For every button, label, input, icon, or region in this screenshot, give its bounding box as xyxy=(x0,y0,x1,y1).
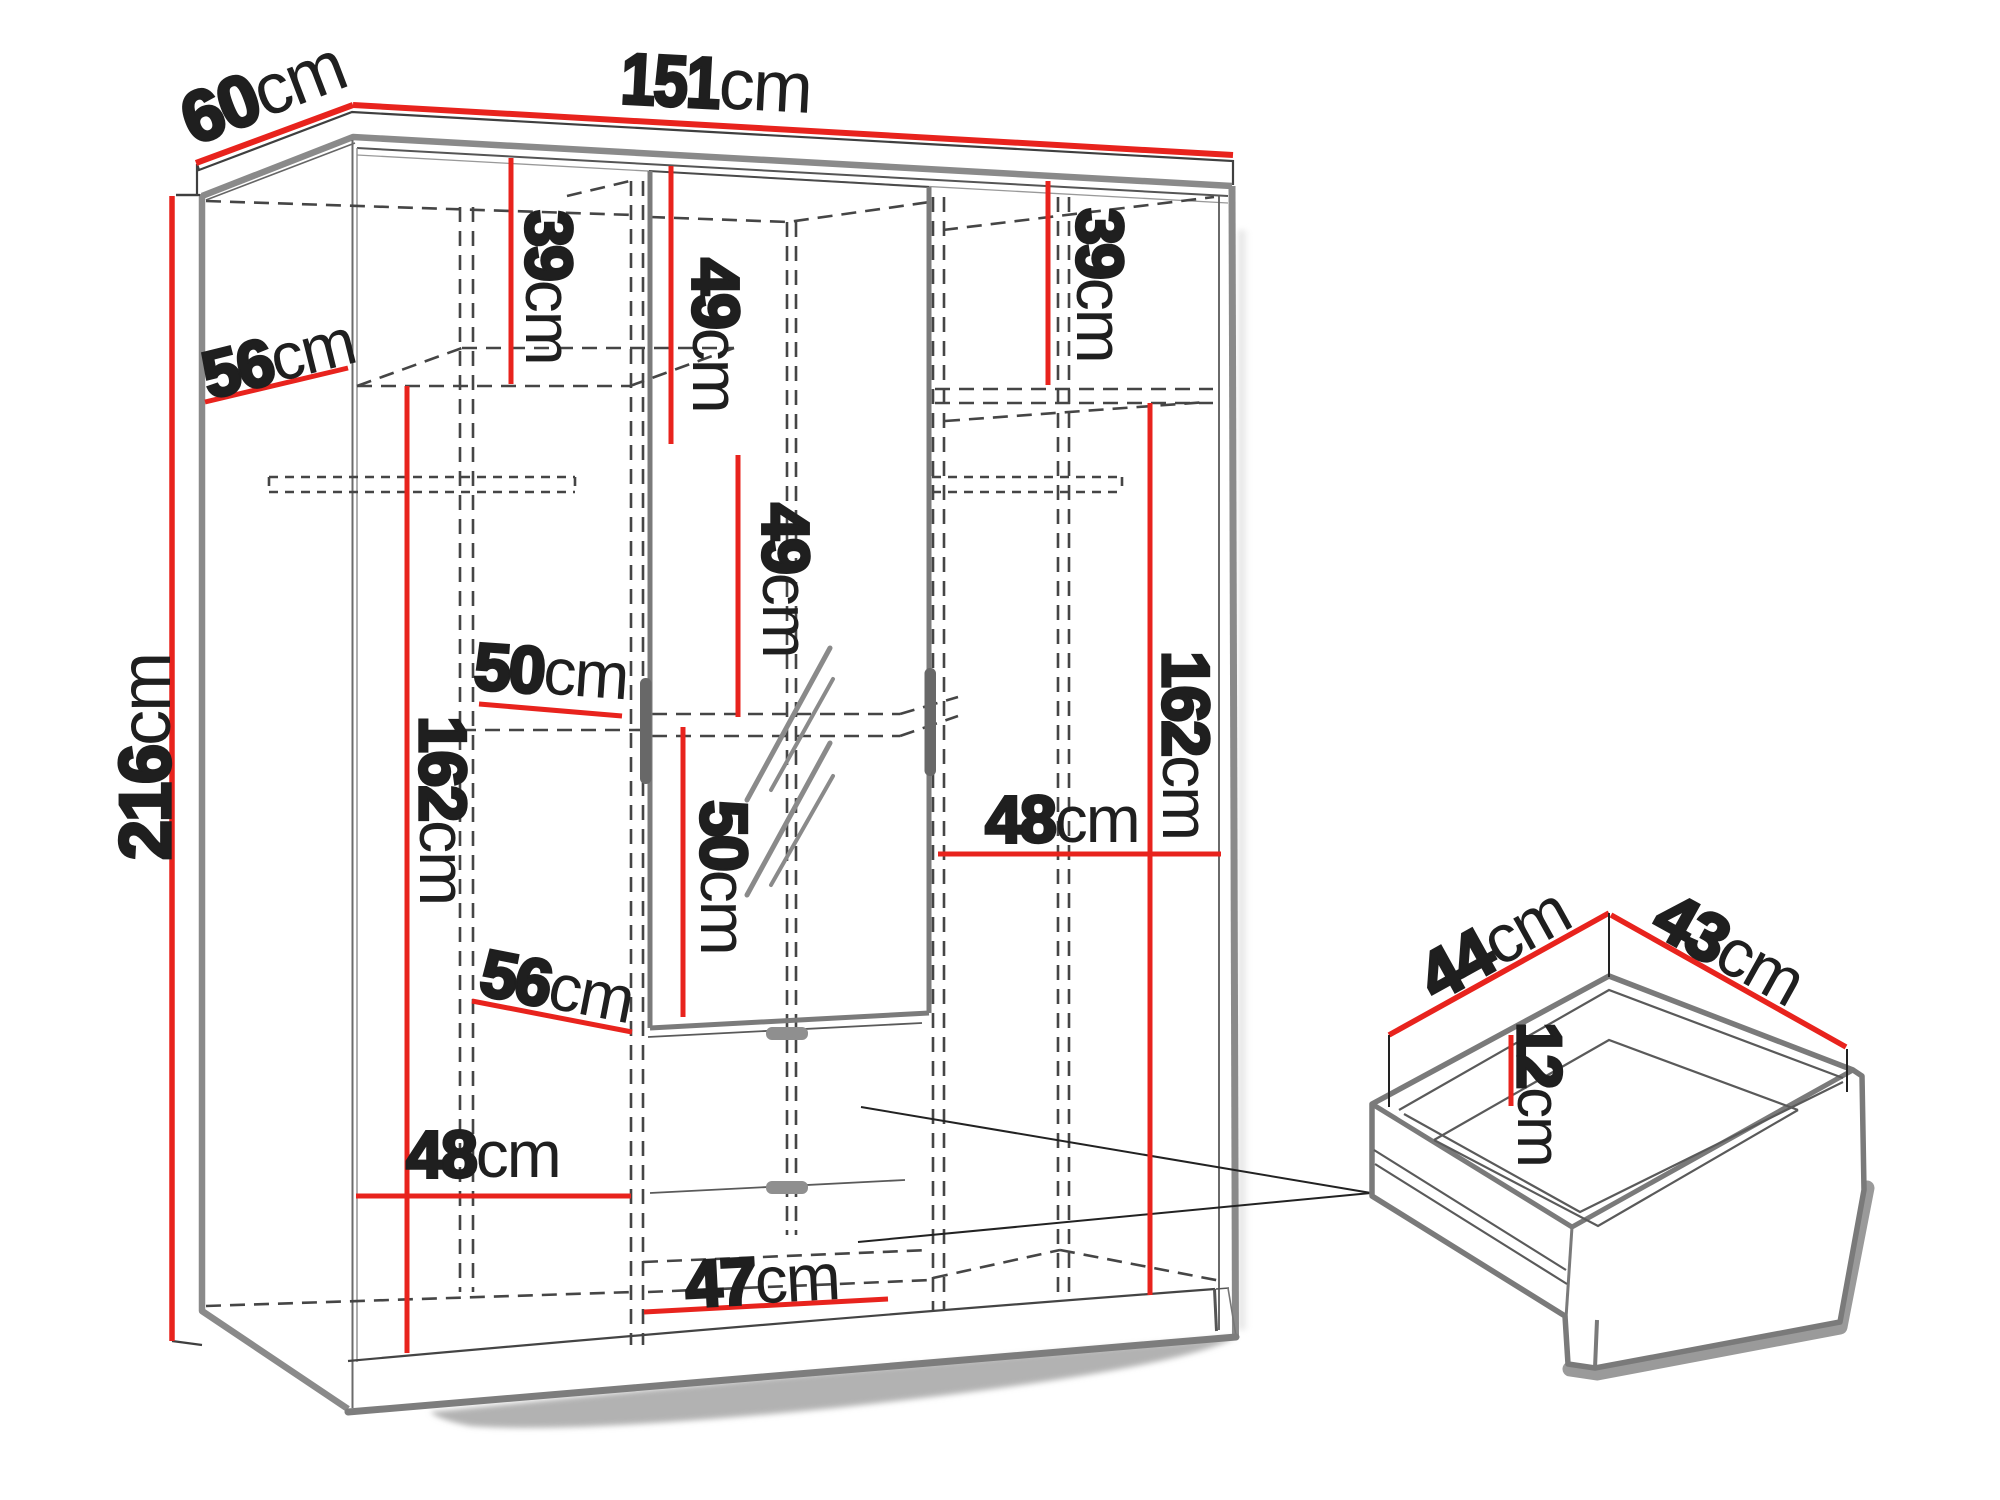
svg-text:49cm: 49cm xyxy=(749,503,823,656)
svg-text:50cm: 50cm xyxy=(687,800,761,953)
svg-text:39cm: 39cm xyxy=(512,210,586,363)
svg-text:162cm: 162cm xyxy=(1149,651,1223,839)
svg-text:216cm: 216cm xyxy=(106,654,186,860)
svg-text:48cm: 48cm xyxy=(985,782,1138,856)
svg-text:162cm: 162cm xyxy=(406,716,480,904)
svg-text:48cm: 48cm xyxy=(406,1117,559,1191)
svg-text:12cm: 12cm xyxy=(1505,1022,1574,1166)
svg-text:151cm: 151cm xyxy=(619,39,813,129)
svg-text:39cm: 39cm xyxy=(1063,208,1137,361)
svg-text:47cm: 47cm xyxy=(683,1239,840,1321)
svg-text:49cm: 49cm xyxy=(679,258,753,411)
svg-text:50cm: 50cm xyxy=(472,629,630,714)
